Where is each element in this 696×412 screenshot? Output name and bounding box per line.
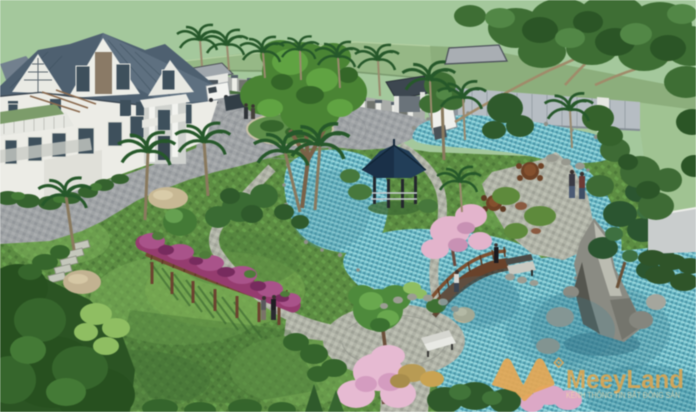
svg-text:MeeyLand: MeeyLand	[566, 364, 684, 394]
svg-text:KÊNH THÔNG TIN BẤT ĐỘNG SẢN: KÊNH THÔNG TIN BẤT ĐỘNG SẢN	[566, 390, 680, 400]
